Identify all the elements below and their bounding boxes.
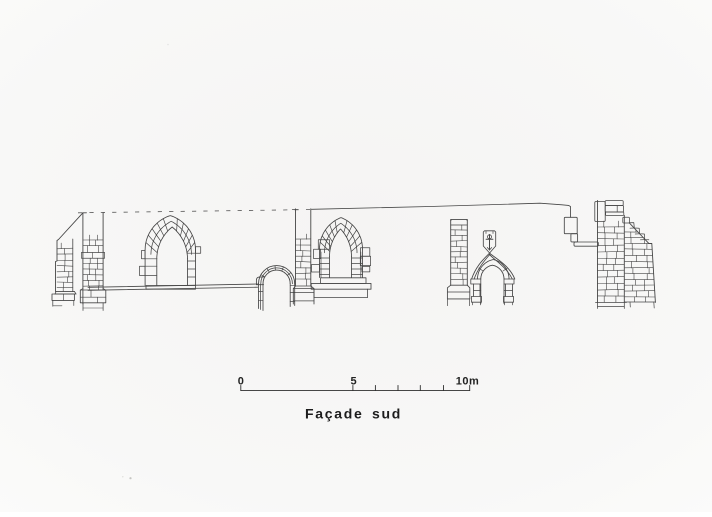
svg-text:5: 5	[350, 376, 356, 388]
svg-text:0: 0	[238, 376, 244, 388]
svg-text:Façade sud: Façade sud	[305, 406, 402, 422]
svg-text:10m: 10m	[456, 376, 480, 388]
